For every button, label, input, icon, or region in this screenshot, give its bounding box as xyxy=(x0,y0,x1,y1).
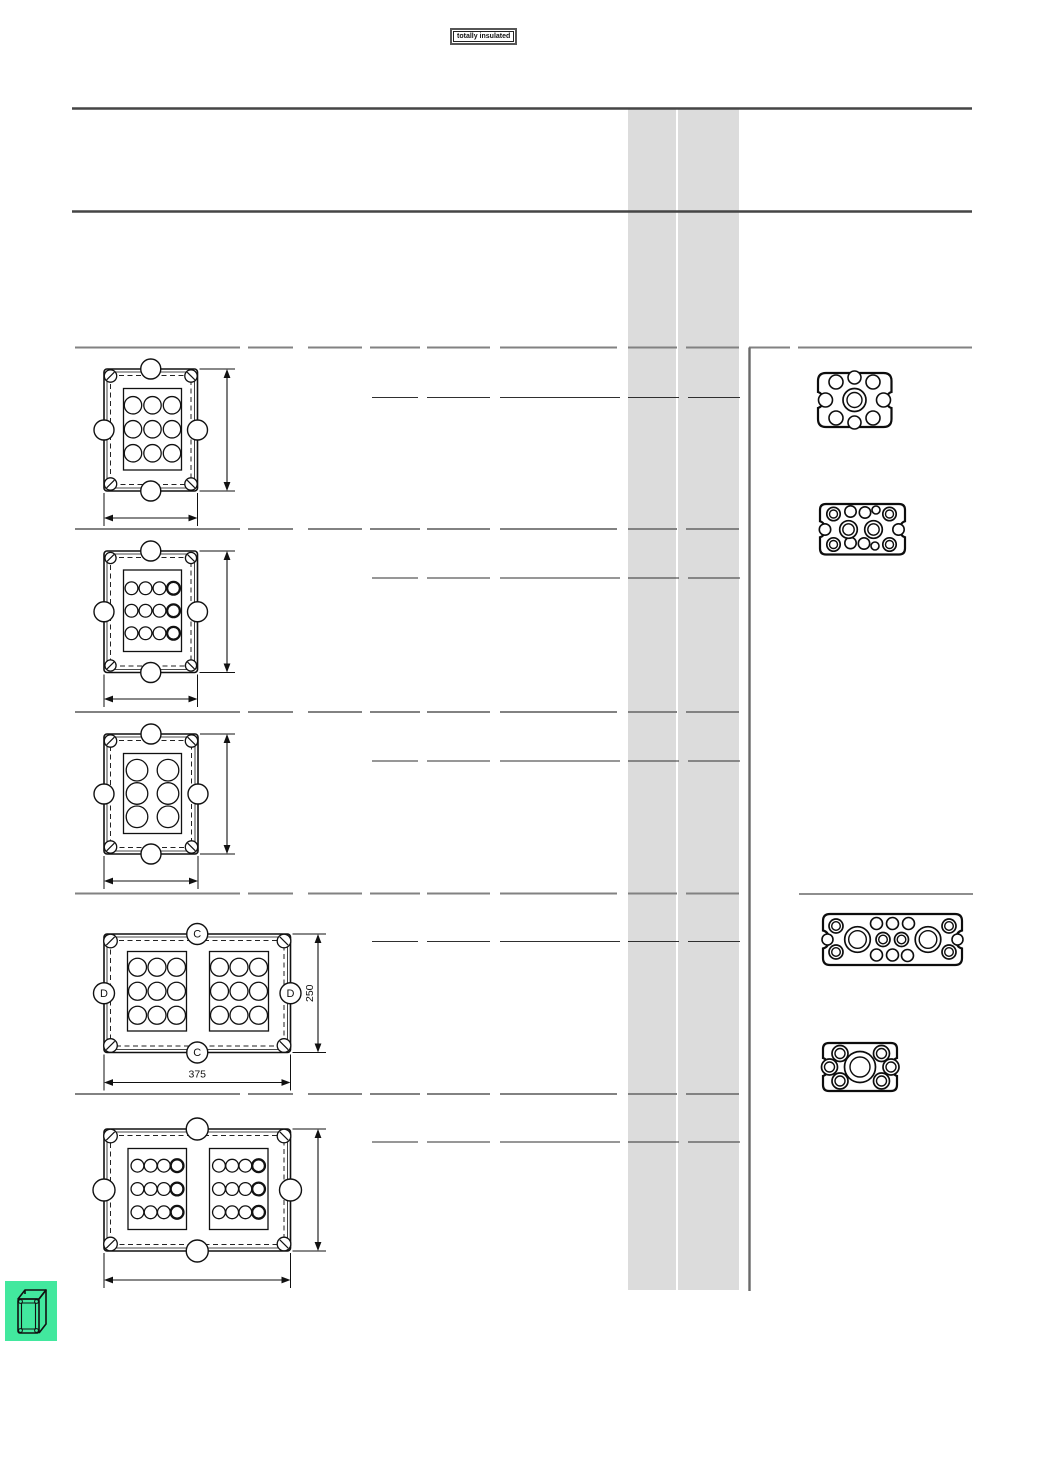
cable-entry-bump xyxy=(141,844,161,864)
membrane-hole xyxy=(819,393,833,407)
gasket-drawing-1 xyxy=(818,371,892,429)
enclosure-drawing-4: CCDD250375 xyxy=(94,924,327,1091)
membrane-hole xyxy=(887,949,899,961)
gasket-drawing-4 xyxy=(822,1043,900,1091)
right-column-rule xyxy=(750,348,974,1292)
cable-entry-bump xyxy=(94,784,114,804)
membrane-hole xyxy=(887,918,899,930)
grommet-ring xyxy=(845,1052,876,1083)
membrane-hole xyxy=(848,371,861,384)
membrane-hole xyxy=(866,411,880,425)
enclosure-drawing-5 xyxy=(93,1118,326,1288)
shaded-column-band xyxy=(628,109,739,1290)
cable-entry-bump xyxy=(141,359,161,379)
catalog-page: totally insulated CCDD250375 xyxy=(0,0,1040,1473)
enclosure-drawing-2 xyxy=(94,541,235,707)
membrane-hole xyxy=(866,375,880,389)
cable-entry-bump xyxy=(141,481,161,501)
cable-entry-bump xyxy=(188,602,208,622)
side-label: C xyxy=(193,929,201,941)
side-label: D xyxy=(287,988,295,1000)
membrane-hole xyxy=(819,524,830,535)
dimension-label: 375 xyxy=(188,1069,206,1081)
cable-entry-bump xyxy=(94,602,114,622)
membrane-hole xyxy=(877,393,891,407)
header-rules xyxy=(72,109,972,212)
membrane-hole xyxy=(822,934,833,945)
side-label: C xyxy=(193,1047,201,1059)
membrane-hole xyxy=(845,537,856,548)
membrane-hole xyxy=(903,918,915,930)
cable-entry-bump xyxy=(186,1240,208,1262)
gasket-drawing-3 xyxy=(822,914,963,965)
cable-entry-bump xyxy=(94,420,114,440)
membrane-hole xyxy=(871,949,883,961)
side-label: D xyxy=(100,988,108,1000)
enclosure-3d-icon xyxy=(5,1281,57,1341)
membrane-hole xyxy=(902,950,914,962)
cable-entry-bump xyxy=(141,541,161,561)
cable-entry-bump xyxy=(141,724,161,744)
gasket-drawing-2 xyxy=(819,504,905,555)
membrane-hole xyxy=(859,507,870,518)
membrane-hole xyxy=(871,542,879,550)
technical-drawings-layer: CCDD250375 xyxy=(0,0,1040,1473)
cable-entry-bump xyxy=(141,663,161,683)
enclosure-drawing-3 xyxy=(94,724,235,889)
cable-entry-bump xyxy=(188,420,208,440)
cable-entry-bump xyxy=(186,1118,208,1140)
membrane-hole xyxy=(872,506,880,514)
membrane-hole xyxy=(952,934,963,945)
enclosure-drawing-1 xyxy=(94,359,235,526)
membrane-hole xyxy=(845,506,856,517)
product-category-icon xyxy=(5,1281,57,1341)
membrane-hole xyxy=(829,375,843,389)
membrane-hole xyxy=(848,416,861,429)
cable-entry-bump xyxy=(93,1179,115,1201)
cable-entry-bump xyxy=(188,784,208,804)
membrane-hole xyxy=(829,411,843,425)
dimension-label: 250 xyxy=(304,984,316,1002)
membrane-hole xyxy=(858,538,869,549)
cable-entry-bump xyxy=(280,1179,302,1201)
membrane-hole xyxy=(871,918,883,930)
membrane-hole xyxy=(893,524,904,535)
